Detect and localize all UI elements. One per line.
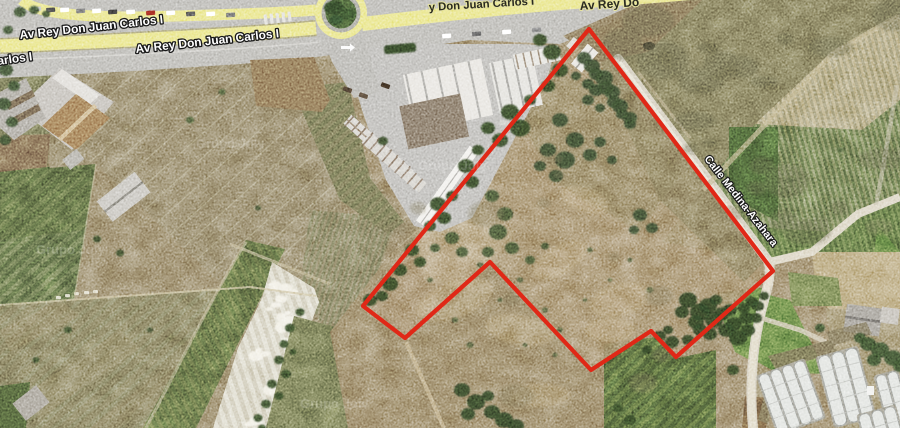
svg-text:Grupo Joly: Grupo Joly (36, 242, 105, 257)
svg-text:Grupo Joly: Grupo Joly (300, 396, 369, 411)
svg-text:Grupo Joly: Grupo Joly (196, 136, 265, 151)
svg-text:Grupo Joly: Grupo Joly (418, 158, 487, 173)
